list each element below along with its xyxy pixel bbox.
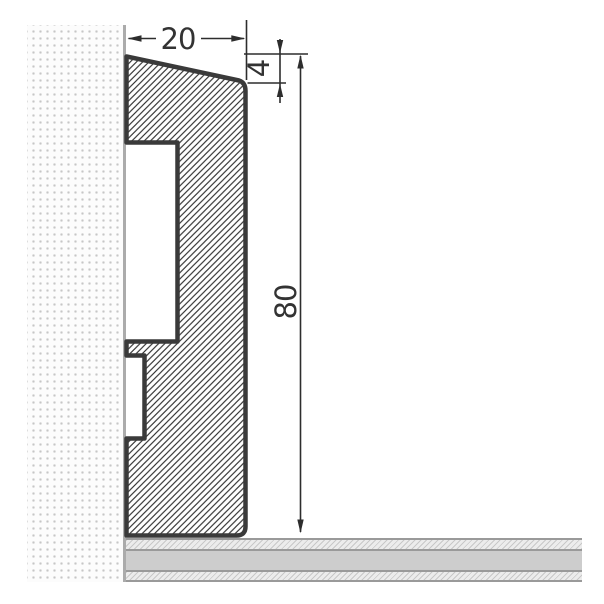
dim-bevel-label: 4 <box>242 60 276 77</box>
dim-height-arrow-up-icon <box>297 55 303 69</box>
dim-bevel-arrow-up-icon <box>277 84 283 97</box>
dim-bevel-arrow-down-icon <box>277 40 283 53</box>
dim-width-arrow-left-icon <box>128 35 142 42</box>
skirting-profile-outline <box>127 57 246 536</box>
dim-width-arrow-right-icon <box>231 35 245 42</box>
technical-drawing-canvas: 20 4 80 <box>0 0 604 604</box>
profile-drawing-svg: 20 4 80 <box>0 0 604 604</box>
dim-height-group: 80 <box>269 55 304 533</box>
dim-height-arrow-down-icon <box>297 520 303 534</box>
dim-bevel-group: 4 <box>242 39 308 103</box>
dim-width-label: 20 <box>161 22 196 56</box>
dim-height-label: 80 <box>269 285 303 320</box>
